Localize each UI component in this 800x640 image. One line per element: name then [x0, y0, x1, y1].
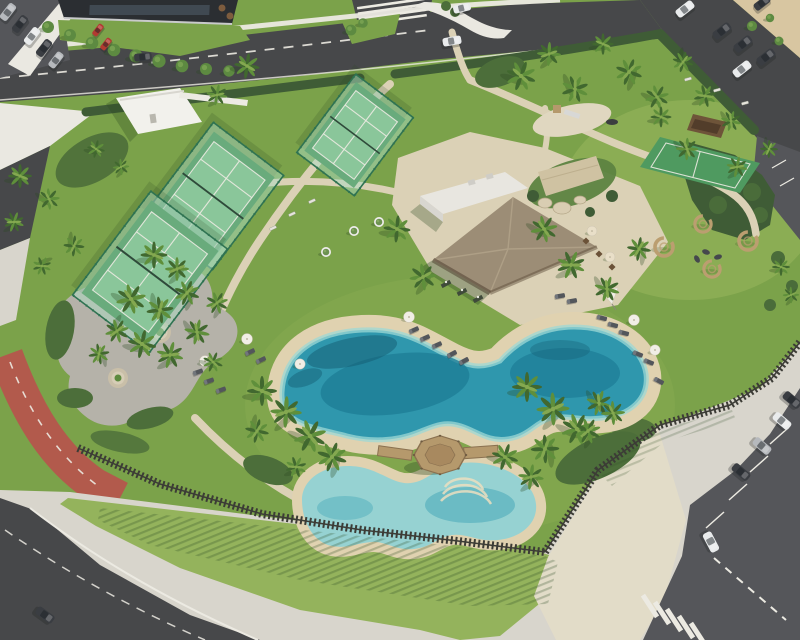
aerial-photo	[0, 0, 800, 640]
cafe-umbrella	[219, 5, 226, 12]
deep-water	[317, 496, 373, 520]
cafe-umbrella	[227, 13, 234, 20]
aerial-scene	[0, 0, 800, 640]
door	[149, 114, 156, 124]
boulder	[574, 196, 586, 204]
saucer-swing	[606, 119, 618, 125]
circular-planter	[108, 368, 128, 388]
bush	[441, 1, 451, 11]
boulder	[538, 198, 552, 208]
building-glazing	[89, 5, 210, 15]
tree-shadow-on-water	[530, 340, 590, 360]
octagon-deck	[413, 435, 468, 475]
play-tower	[553, 105, 561, 113]
boulder	[553, 202, 571, 214]
